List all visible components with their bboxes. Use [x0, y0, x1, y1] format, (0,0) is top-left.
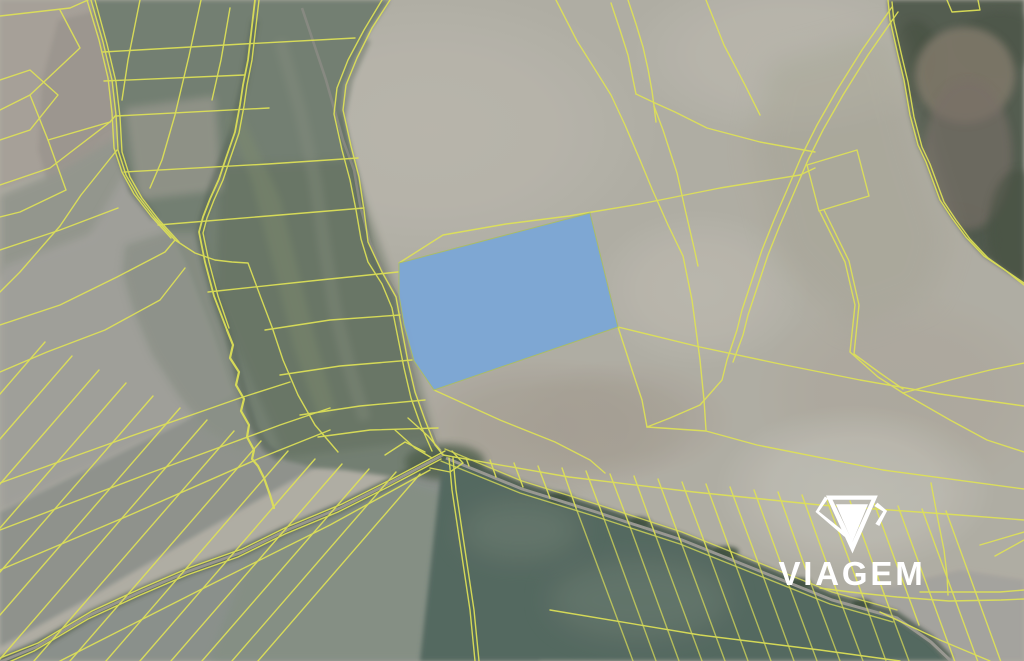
svg-text:VIAGEM: VIAGEM [779, 555, 926, 592]
